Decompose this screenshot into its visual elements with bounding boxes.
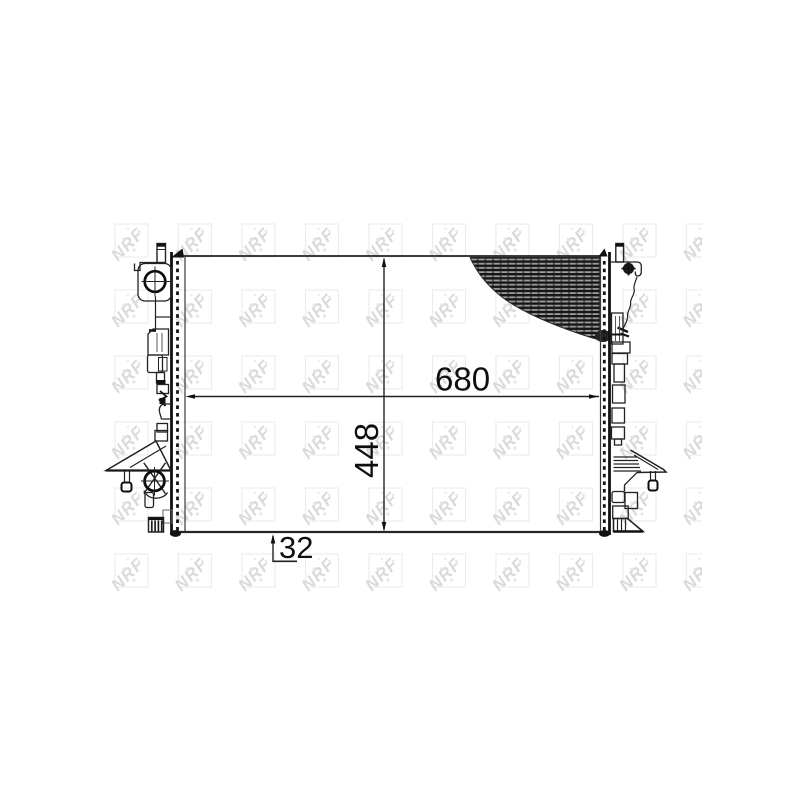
svg-text:448: 448 — [348, 423, 385, 478]
svg-text:32: 32 — [279, 530, 313, 565]
svg-text:680: 680 — [435, 361, 490, 398]
